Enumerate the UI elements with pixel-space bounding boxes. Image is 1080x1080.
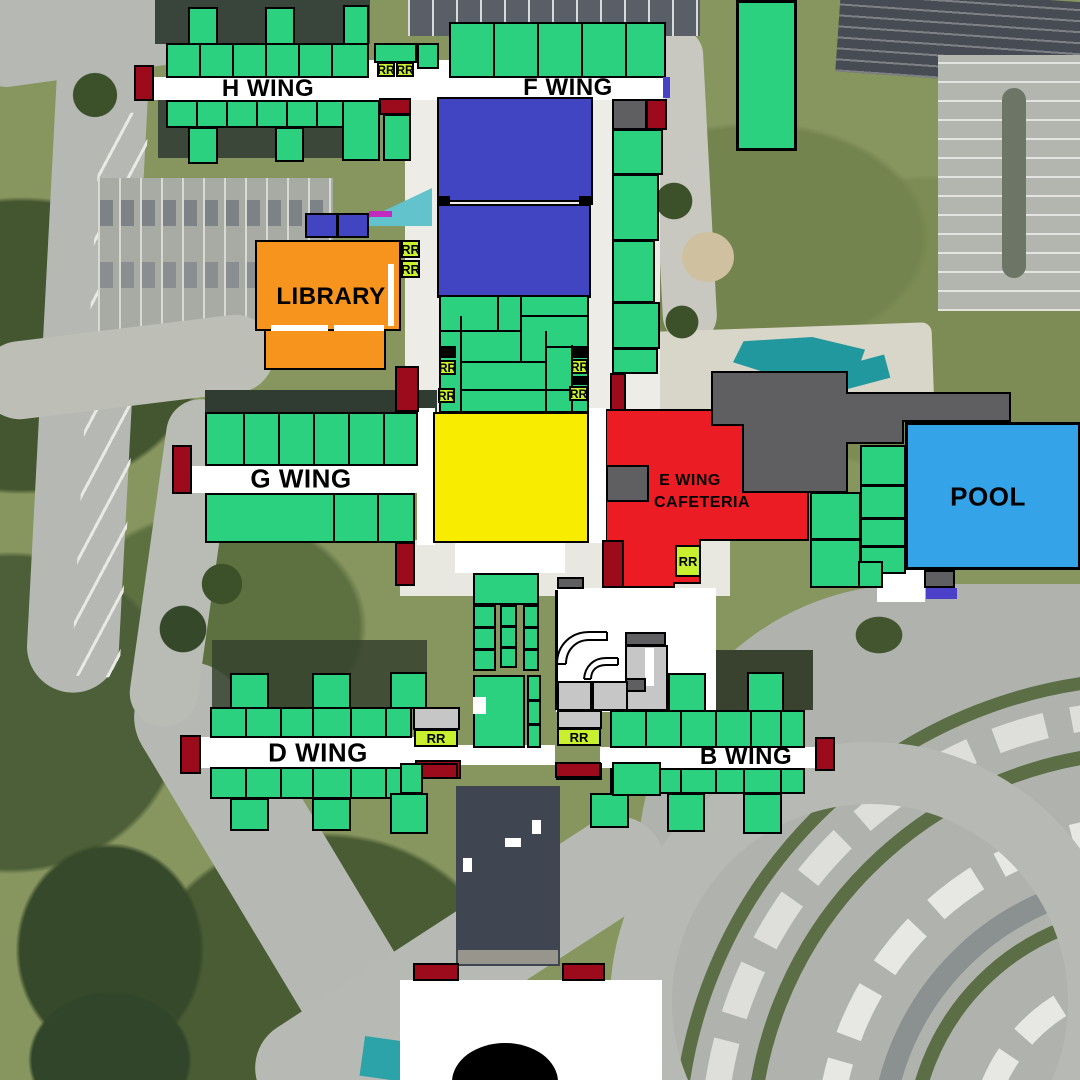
campus-map: RRRRRRRRRRRRRRRRRRRRRR H WINGF WINGLIBRA… bbox=[0, 0, 1080, 1080]
hand-drawn-path bbox=[584, 658, 618, 679]
hand-drawn-path bbox=[591, 665, 618, 679]
hand-drawn-path bbox=[566, 640, 607, 664]
squiggle-layer bbox=[0, 0, 1080, 1080]
